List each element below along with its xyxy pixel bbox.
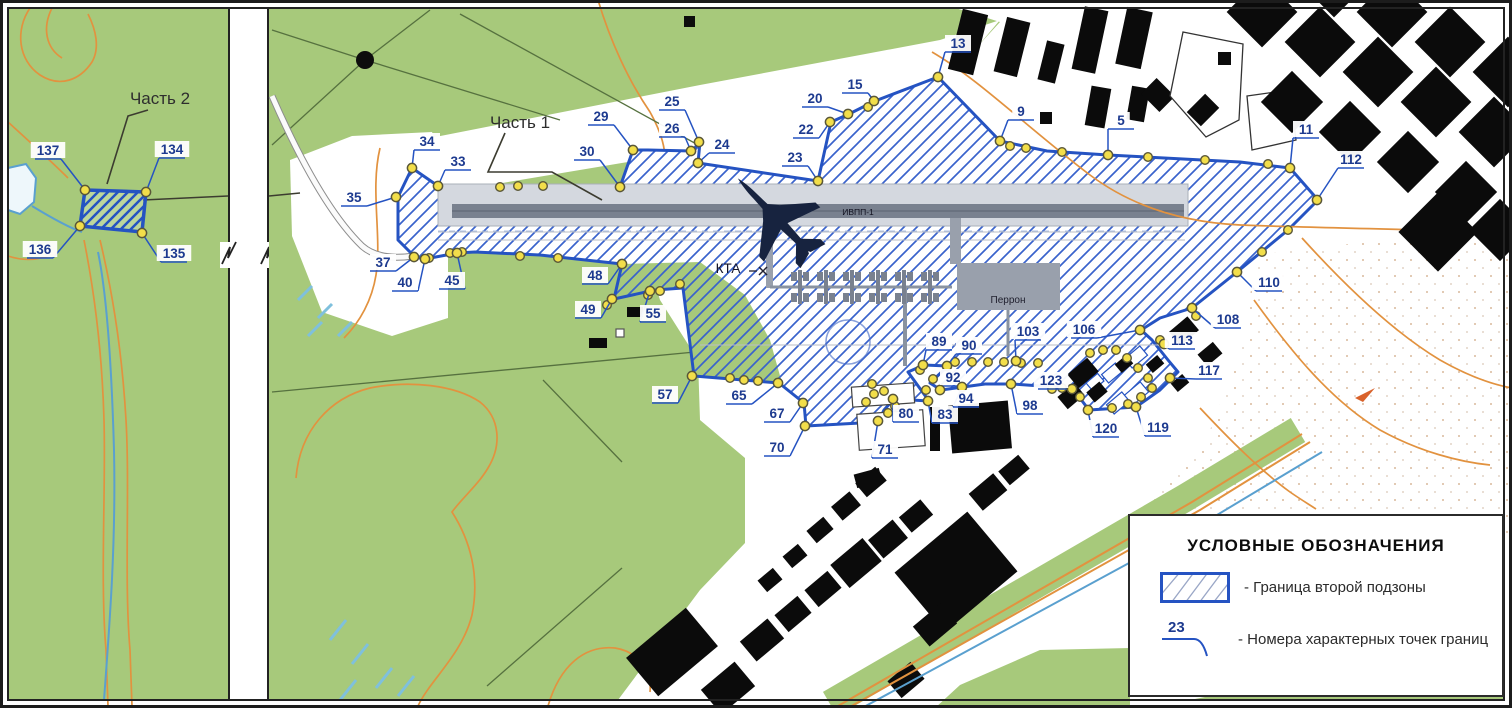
boundary-point bbox=[514, 182, 523, 191]
kta-label: КТА bbox=[716, 261, 741, 276]
boundary-point bbox=[968, 358, 977, 367]
boundary-point bbox=[1144, 374, 1153, 383]
boundary-point bbox=[1011, 356, 1020, 365]
point-label: 45 bbox=[444, 273, 460, 288]
part2-panel-art bbox=[8, 8, 229, 706]
point-label: 110 bbox=[1258, 275, 1280, 290]
point-label: 98 bbox=[1022, 398, 1038, 413]
point-label: 29 bbox=[593, 109, 608, 124]
boundary-point bbox=[813, 176, 822, 185]
boundary-point bbox=[1312, 195, 1321, 204]
boundary-point bbox=[80, 185, 89, 194]
point-label: 13 bbox=[950, 36, 966, 51]
legend-point-leader-icon bbox=[1160, 635, 1220, 661]
boundary-point bbox=[141, 187, 150, 196]
point-label: 117 bbox=[1198, 363, 1220, 378]
legend-row-points: 23 - Номера характерных точек границ bbox=[1160, 619, 1502, 659]
legend-zone-label: - Граница второй подзоны bbox=[1244, 579, 1426, 596]
boundary-point bbox=[798, 398, 807, 407]
boundary-point bbox=[1000, 358, 1009, 367]
boundary-point bbox=[1232, 267, 1241, 276]
boundary-point bbox=[420, 254, 429, 263]
boundary-point bbox=[868, 380, 877, 389]
boundary-point bbox=[843, 109, 852, 118]
point-label: 136 bbox=[29, 242, 52, 257]
boundary-point bbox=[1086, 349, 1095, 358]
boundary-point bbox=[1148, 384, 1157, 393]
point-label: 65 bbox=[731, 388, 747, 403]
point-label: 92 bbox=[945, 370, 960, 385]
point-label: 23 bbox=[787, 150, 803, 165]
point-label: 15 bbox=[847, 77, 863, 92]
boundary-point bbox=[137, 228, 146, 237]
runway-label: ИВПП-1 bbox=[842, 207, 874, 217]
boundary-point bbox=[607, 294, 616, 303]
boundary-point bbox=[1058, 148, 1067, 157]
boundary-point bbox=[516, 252, 525, 261]
boundary-point bbox=[884, 409, 893, 418]
boundary-point bbox=[1034, 359, 1043, 368]
boundary-point bbox=[615, 182, 624, 191]
boundary-point bbox=[1099, 346, 1108, 355]
boundary-point bbox=[452, 248, 461, 257]
point-label: 37 bbox=[375, 255, 390, 270]
point-label: 11 bbox=[1299, 122, 1314, 137]
boundary-point bbox=[1006, 142, 1015, 151]
boundary-point bbox=[75, 221, 84, 230]
point-label: 70 bbox=[769, 440, 784, 455]
point-label: 57 bbox=[657, 387, 672, 402]
point-label: 35 bbox=[346, 190, 362, 205]
point-label: 40 bbox=[397, 275, 412, 290]
point-label: 48 bbox=[587, 268, 603, 283]
boundary-point bbox=[995, 136, 1004, 145]
legend-points-label: - Номера характерных точек границ bbox=[1238, 631, 1488, 648]
point-label: 112 bbox=[1340, 152, 1362, 167]
boundary-point bbox=[687, 371, 696, 380]
boundary-point bbox=[1135, 325, 1144, 334]
point-label: 25 bbox=[664, 94, 680, 109]
boundary-point bbox=[433, 181, 442, 190]
boundary-point bbox=[694, 137, 703, 146]
boundary-point bbox=[1258, 248, 1267, 257]
boundary-point bbox=[1165, 373, 1174, 382]
point-label: 123 bbox=[1040, 373, 1063, 388]
part2-title: Часть 2 bbox=[130, 89, 190, 108]
boundary-point bbox=[645, 286, 654, 295]
boundary-point bbox=[1144, 153, 1153, 162]
point-label: 30 bbox=[579, 144, 594, 159]
boundary-point bbox=[862, 398, 871, 407]
boundary-point bbox=[1131, 402, 1140, 411]
boundary-point bbox=[923, 396, 932, 405]
point-label: 33 bbox=[450, 154, 466, 169]
point-label: 34 bbox=[419, 134, 435, 149]
legend-row-zone: - Граница второй подзоны bbox=[1160, 572, 1502, 603]
boundary-point bbox=[918, 360, 927, 369]
boundary-point bbox=[740, 376, 749, 385]
boundary-point bbox=[1201, 156, 1210, 165]
legend-zone-swatch bbox=[1160, 572, 1230, 603]
boundary-point bbox=[935, 385, 944, 394]
boundary-point bbox=[825, 117, 834, 126]
boundary-point bbox=[1264, 160, 1273, 169]
boundary-point bbox=[554, 254, 563, 263]
map-break-divider bbox=[220, 8, 277, 700]
boundary-point bbox=[1187, 303, 1196, 312]
boundary-point bbox=[686, 146, 695, 155]
boundary-point bbox=[617, 259, 626, 268]
legend-title: УСЛОВНЫЕ ОБОЗНАЧЕНИЯ bbox=[1130, 536, 1502, 556]
point-label: 90 bbox=[961, 338, 976, 353]
boundary-point bbox=[1022, 144, 1031, 153]
boundary-point bbox=[1006, 379, 1015, 388]
boundary-point bbox=[933, 72, 942, 81]
map-canvas: Часть 1Часть 2КТАИВПП-1Перрон59111315202… bbox=[0, 0, 1512, 708]
boundary-point bbox=[1134, 364, 1143, 373]
point-label: 89 bbox=[931, 334, 946, 349]
point-label: 49 bbox=[580, 302, 595, 317]
boundary-point bbox=[407, 163, 416, 172]
boundary-point bbox=[773, 378, 782, 387]
boundary-point bbox=[656, 287, 665, 296]
point-label: 26 bbox=[664, 121, 680, 136]
point-label: 55 bbox=[645, 306, 661, 321]
point-label: 94 bbox=[958, 391, 974, 406]
boundary-point bbox=[676, 280, 685, 289]
boundary-point bbox=[1108, 404, 1117, 413]
boundary-point bbox=[1112, 346, 1121, 355]
boundary-point bbox=[984, 358, 993, 367]
point-label: 5 bbox=[1117, 113, 1125, 128]
boundary-point bbox=[922, 386, 931, 395]
point-label: 24 bbox=[714, 137, 730, 152]
point-label: 108 bbox=[1217, 312, 1240, 327]
point-label: 106 bbox=[1073, 322, 1096, 337]
boundary-point bbox=[754, 377, 763, 386]
boundary-point bbox=[409, 252, 418, 261]
legend-box: УСЛОВНЫЕ ОБОЗНАЧЕНИЯ - Граница второй по… bbox=[1128, 514, 1504, 697]
boundary-point bbox=[1284, 226, 1293, 235]
boundary-point bbox=[539, 182, 548, 191]
point-label: 9 bbox=[1017, 104, 1025, 119]
boundary-point bbox=[496, 183, 505, 192]
boundary-point bbox=[873, 416, 882, 425]
point-label: 20 bbox=[807, 91, 822, 106]
point-label: 67 bbox=[769, 406, 784, 421]
boundary-point bbox=[869, 96, 878, 105]
point-label: 120 bbox=[1095, 421, 1118, 436]
point-label: 71 bbox=[877, 442, 893, 457]
point-label: 113 bbox=[1171, 333, 1193, 348]
boundary-point bbox=[628, 145, 637, 154]
point-label: 119 bbox=[1147, 420, 1169, 435]
point-label: 103 bbox=[1017, 324, 1040, 339]
boundary-point bbox=[1083, 405, 1092, 414]
boundary-point bbox=[1137, 393, 1146, 402]
point-label: 83 bbox=[937, 407, 953, 422]
point-label: 135 bbox=[163, 246, 186, 261]
boundary-point bbox=[726, 374, 735, 383]
boundary-point bbox=[929, 375, 938, 384]
legend-point-number: 23 bbox=[1168, 619, 1185, 636]
point-label: 134 bbox=[161, 142, 184, 157]
point-label: 22 bbox=[798, 122, 813, 137]
boundary-point bbox=[1076, 393, 1085, 402]
boundary-point bbox=[888, 394, 897, 403]
boundary-point bbox=[1103, 150, 1112, 159]
zone-part2 bbox=[80, 190, 146, 232]
boundary-point bbox=[391, 192, 400, 201]
boundary-point bbox=[800, 421, 809, 430]
legend-point-symbol: 23 bbox=[1160, 619, 1224, 659]
point-label: 137 bbox=[37, 143, 60, 158]
boundary-point bbox=[693, 158, 702, 167]
boundary-point bbox=[1067, 384, 1076, 393]
part1-title: Часть 1 bbox=[490, 113, 550, 132]
boundary-point bbox=[870, 390, 879, 399]
boundary-point bbox=[1285, 163, 1294, 172]
boundary-point bbox=[880, 387, 889, 396]
point-label: 80 bbox=[898, 406, 913, 421]
apron-label: Перрон bbox=[991, 295, 1026, 306]
boundary-point bbox=[1123, 354, 1132, 363]
